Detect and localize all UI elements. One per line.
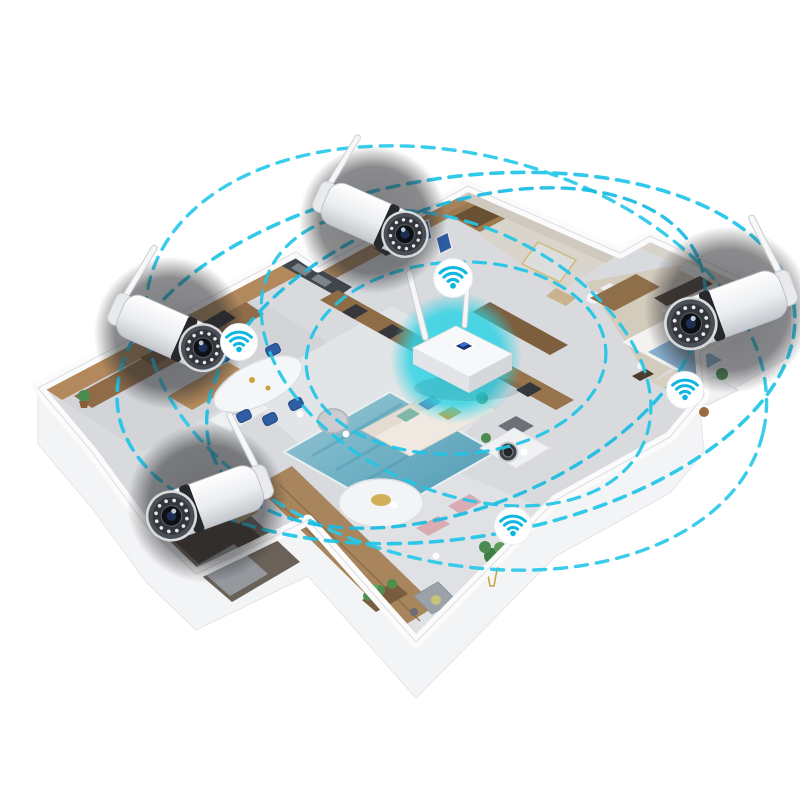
wifi-signal-hallway [434,259,473,298]
armchair [318,409,348,433]
wifi-signal-dining [221,324,258,361]
product-illustration [0,0,800,800]
home-security-coverage-scene [0,0,800,800]
wifi-signal-living-room [495,508,532,545]
wifi-signal-bedroom [667,372,704,409]
kitchen-plant [78,390,90,402]
